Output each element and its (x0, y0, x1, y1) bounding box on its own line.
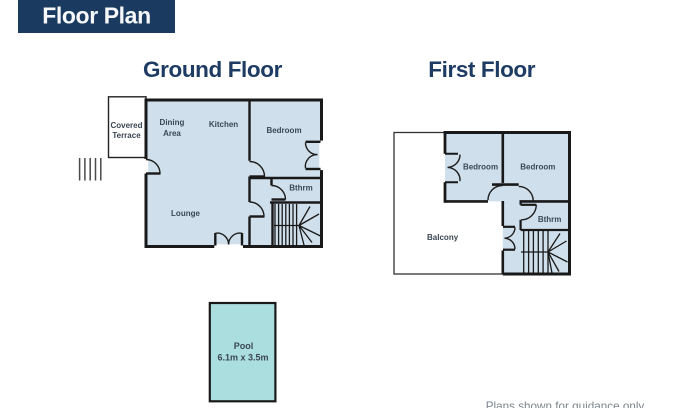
svg-text:Kitchen: Kitchen (209, 120, 238, 129)
svg-text:Bedroom: Bedroom (266, 126, 301, 135)
svg-text:Pool: Pool (234, 341, 254, 351)
svg-text:Bedroom: Bedroom (520, 163, 555, 172)
svg-text:6.1m x 3.5m: 6.1m x 3.5m (217, 353, 268, 363)
svg-text:Floor Plan: Floor Plan (42, 2, 150, 28)
svg-text:First Floor: First Floor (428, 57, 535, 82)
svg-text:Dining: Dining (160, 118, 185, 127)
svg-text:Bthrm: Bthrm (538, 215, 562, 224)
svg-text:Lounge: Lounge (171, 209, 200, 218)
svg-text:Area: Area (163, 129, 181, 138)
svg-text:Bedroom: Bedroom (463, 163, 498, 172)
svg-text:Plans shown for guidance only: Plans shown for guidance only (486, 400, 645, 408)
svg-text:Covered: Covered (110, 121, 142, 130)
svg-text:Ground Floor: Ground Floor (143, 57, 283, 82)
svg-text:Terrace: Terrace (112, 131, 141, 140)
svg-text:Bthrm: Bthrm (289, 184, 313, 193)
svg-text:Balcony: Balcony (427, 233, 459, 242)
